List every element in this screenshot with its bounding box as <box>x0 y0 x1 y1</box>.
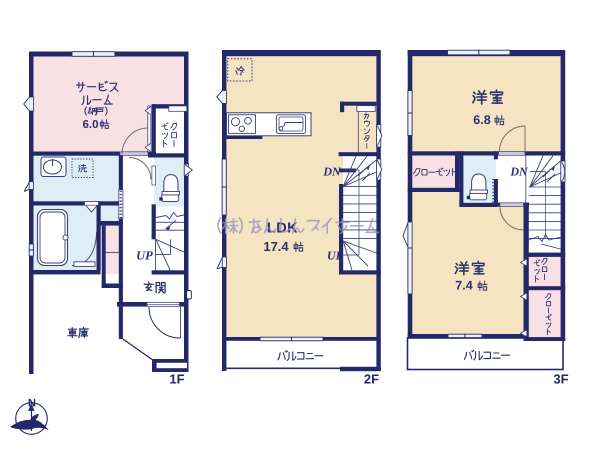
svg-text:N: N <box>28 398 36 410</box>
svg-text:UP: UP <box>327 249 344 263</box>
svg-text:6.8: 6.8 <box>473 113 490 127</box>
svg-text:1F: 1F <box>169 372 184 387</box>
svg-text:7.4: 7.4 <box>455 279 472 293</box>
svg-text:3F: 3F <box>553 372 568 387</box>
svg-text:17.4: 17.4 <box>263 239 289 254</box>
svg-text:DN: DN <box>322 165 342 179</box>
svg-text:DN: DN <box>509 165 529 179</box>
svg-text:6.0: 6.0 <box>83 119 99 131</box>
svg-text:UP: UP <box>136 249 153 263</box>
svg-text:2F: 2F <box>364 372 379 387</box>
